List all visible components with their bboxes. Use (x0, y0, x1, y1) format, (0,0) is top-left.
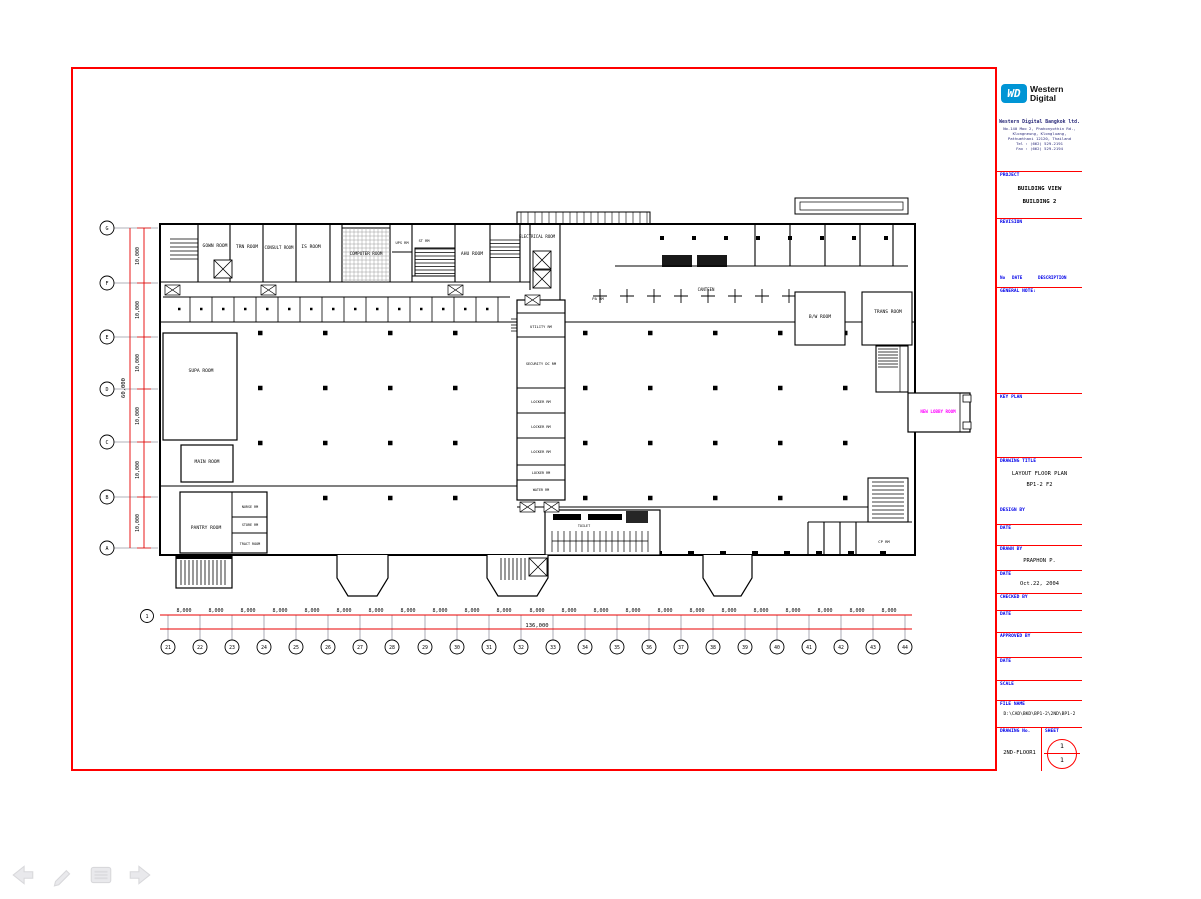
room-labels: GOWN ROOM TRN ROOM CONSULT ROOM IS ROOM … (189, 234, 957, 546)
drawn-by-value: PRAPHON P. (997, 558, 1082, 564)
grid-bubble-label: 33 (550, 645, 556, 651)
dim-label: 10,000 (135, 301, 141, 319)
date-label: DATE (1000, 572, 1011, 577)
forward-arrow-icon[interactable] (127, 862, 153, 888)
dim-label: 8,000 (336, 608, 351, 614)
drawing-no-value: 2ND-FLOOR1 (997, 750, 1042, 756)
project-line1: BUILDING VIEW (997, 186, 1082, 192)
room-label: NURSE RM (242, 505, 258, 509)
date-section-4: DATE (997, 657, 1082, 680)
title-block-logo-section: WD Western Digital Western Digital Bangk… (997, 67, 1082, 171)
dim-label: 8,000 (561, 608, 576, 614)
grid-bubble-label: 42 (838, 645, 844, 651)
sheet-label: SHEET (1045, 729, 1059, 734)
room-label: CONSULT ROOM (265, 245, 294, 250)
grid-bubble-label: C (105, 440, 108, 446)
bottom-dimensions: 1 8,000 8,000 8,000 8,000 8,000 8,000 8,… (141, 608, 913, 644)
design-by-label: DESIGN BY (1000, 508, 1025, 513)
project-label: PROJECT (1000, 173, 1019, 178)
key-plan-section: KEY PLAN (997, 393, 1082, 457)
grid-bubble-label: 35 (614, 645, 620, 651)
file-name-label: FILE NAME (1000, 702, 1025, 707)
scale-label: SCALE (1000, 682, 1014, 687)
pen-tool-icon[interactable] (49, 862, 75, 888)
room-label: CANTEEN (698, 287, 715, 292)
revision-section: REVISION No DATE DESCRIPTION (997, 218, 1082, 287)
date-label: DATE (1000, 659, 1011, 664)
scale-section: SCALE (997, 680, 1082, 700)
grid-bubble-label: 23 (229, 645, 235, 651)
dim-label: 8,000 (400, 608, 415, 614)
left-dimensions: 10,000 10,000 10,000 10,000 10,000 10,00… (100, 221, 158, 555)
canteen-tables (593, 289, 796, 303)
file-name-value: D:\CAD\BKD\BP1-2\2ND\BP1-2 (997, 712, 1082, 717)
dim-label: 8,000 (657, 608, 672, 614)
dim-label: 8,000 (368, 608, 383, 614)
project-line2: BUILDING 2 (997, 199, 1082, 205)
room-label: LOCKER RM (531, 450, 551, 454)
dim-label: 8,000 (529, 608, 544, 614)
grid-bubble-label: 43 (870, 645, 876, 651)
dim-label: 8,000 (689, 608, 704, 614)
elevator-bottom (529, 558, 547, 576)
dim-label: 8,000 (496, 608, 511, 614)
sheet-number-bottom: 1 (1048, 756, 1076, 764)
drawing-title-line2: BP1-2 F2 (997, 482, 1082, 488)
revision-col-desc: DESCRIPTION (1038, 276, 1066, 281)
general-note-section: GENERAL NOTE: (997, 287, 1082, 393)
date-section-1: DATE (997, 524, 1082, 545)
toilet-block (545, 510, 660, 555)
back-arrow-icon[interactable] (10, 862, 36, 888)
checked-by-section: CHECKED BY (997, 593, 1082, 610)
dim-label: 8,000 (304, 608, 319, 614)
dim-label: 10,000 (135, 461, 141, 479)
dim-label: 8,000 (721, 608, 736, 614)
slideshow-controls (10, 862, 153, 888)
approved-by-section: APPROVED BY (997, 632, 1082, 657)
double-door-icon (261, 285, 276, 295)
title-block: WD Western Digital Western Digital Bangk… (995, 67, 1082, 771)
stair-right-upper (876, 346, 908, 392)
room-label: UTILITY RM (530, 325, 552, 329)
grid-bubble-label: 24 (261, 645, 267, 651)
dim-label: 8,000 (464, 608, 479, 614)
company-name: Western Digital Bangkok ltd. (997, 120, 1082, 125)
drawn-by-section: DRAWN BY PRAPHON P. (997, 545, 1082, 570)
grid-bubble-label: 32 (518, 645, 524, 651)
grid-bubble-label: 28 (389, 645, 395, 651)
grid-bubble-label: 27 (357, 645, 363, 651)
date-section-3: DATE (997, 610, 1082, 632)
room-label: ST RM (419, 239, 431, 243)
double-door-icon (525, 295, 540, 305)
approved-by-label: APPROVED BY (1000, 634, 1030, 639)
dim-label: 8,000 (881, 608, 896, 614)
room-label: B/W ROOM (809, 314, 831, 320)
ref-bubble-label: 1 (145, 614, 148, 620)
elevator-top-left (214, 260, 232, 278)
dim-label: 8,000 (208, 608, 223, 614)
drawn-date-value: Oct.22, 2004 (997, 581, 1082, 587)
dim-label: 8,000 (240, 608, 255, 614)
room-label: MAIN ROOM (195, 459, 220, 465)
double-door-icon (544, 502, 559, 512)
room-label: LOCKER RM (531, 425, 551, 429)
dim-label: 10,000 (135, 247, 141, 265)
dim-label: 8,000 (625, 608, 640, 614)
grid-bubble-label: 37 (678, 645, 684, 651)
dim-label: 8,000 (432, 608, 447, 614)
dim-label: 8,000 (817, 608, 832, 614)
room-label: STORE RM (242, 523, 258, 527)
entrance-canopy-3 (703, 555, 752, 596)
room-label: TRANS ROOM (874, 309, 902, 315)
elevator-core-2 (533, 270, 551, 288)
dim-label: 8,000 (785, 608, 800, 614)
grid-bubble-label: 21 (165, 645, 171, 651)
grid-bubble-label: G (105, 226, 108, 232)
grid-bubbles-bottom: 21 22 23 24 25 26 27 28 29 30 31 32 33 3… (161, 640, 912, 654)
grid-bubble-label: 38 (710, 645, 716, 651)
project-section: PROJECT BUILDING VIEW BUILDING 2 (997, 171, 1082, 218)
grid-bubble-label: 30 (454, 645, 460, 651)
dim-label: 8,000 (753, 608, 768, 614)
dim-label: 8,000 (593, 608, 608, 614)
company-address-line: Fax : (662) 529-2194 (997, 146, 1082, 151)
grid-bubble-label: 25 (293, 645, 299, 651)
grid-bubble-label: 36 (646, 645, 652, 651)
revision-col-date: DATE (1012, 276, 1038, 281)
date-section-2: DATE Oct.22, 2004 (997, 570, 1082, 593)
entrance-canopy-1 (337, 555, 388, 596)
room-label: SECURITY DC RM (526, 362, 557, 366)
room-label: CP RM (878, 539, 890, 544)
stair-bottom-left (176, 555, 232, 588)
slide-canvas: GOWN ROOM TRN ROOM CONSULT ROOM IS ROOM … (0, 0, 1201, 899)
general-note-label: GENERAL NOTE: (1000, 289, 1036, 294)
sheet-number-top: 1 (1048, 742, 1076, 750)
room-label: TRN ROOM (236, 244, 258, 250)
key-plan-label: KEY PLAN (1000, 395, 1022, 400)
room-label: IS ROOM (301, 244, 321, 250)
drawn-by-label: DRAWN BY (1000, 547, 1022, 552)
slide-menu-icon[interactable] (88, 862, 114, 888)
room-label: ELECTRICAL ROOM (519, 234, 556, 239)
room-label: WATER RM (533, 488, 549, 492)
drawing-no-label: DRAWING No. (1000, 729, 1030, 734)
canteen-counter (662, 255, 727, 267)
grid-bubble-label: 22 (197, 645, 203, 651)
grid-bubble-label: 34 (582, 645, 588, 651)
sheet-cell: SHEET 1 1 (1041, 728, 1082, 771)
room-label: AHU ROOM (461, 251, 483, 257)
grid-bubble-label: A (105, 546, 108, 552)
room-label: TRACT ROOM (240, 542, 260, 546)
date-label: DATE (1000, 612, 1011, 617)
lobby-label: NEW LOBBY ROOM (920, 409, 956, 414)
room-label: GOWN ROOM (203, 243, 228, 249)
brand-line2: Digital (1030, 94, 1063, 103)
grid-bubble-label: D (105, 387, 108, 393)
checked-by-label: CHECKED BY (1000, 595, 1028, 600)
grid-bubble-label: 39 (742, 645, 748, 651)
grid-bubble-label: 40 (774, 645, 780, 651)
room-label: TOILET (578, 524, 590, 528)
grid-bubble-label: 41 (806, 645, 812, 651)
room-label: PANTRY ROOM (191, 525, 222, 531)
drawing-title-line1: LAYOUT FLOOR PLAN (997, 471, 1082, 477)
dim-label: 8,000 (849, 608, 864, 614)
dim-label: 8,000 (272, 608, 287, 614)
room-label: UPS RM (396, 241, 410, 245)
dim-label: 10,000 (135, 407, 141, 425)
sheet-number-badge: 1 1 (1047, 739, 1077, 769)
file-name-section: FILE NAME D:\CAD\BKD\BP1-2\2ND\BP1-2 (997, 700, 1082, 727)
double-door-icon (448, 285, 463, 295)
room-label: LOCKER RM (531, 400, 551, 404)
drawing-number-section: DRAWING No. 2ND-FLOOR1 SHEET 1 1 (997, 727, 1082, 771)
double-door-icon (165, 285, 180, 295)
elevator-core-1 (533, 251, 551, 269)
room-label: COMPUTER ROOM (350, 251, 383, 256)
top-duct-strip (517, 212, 650, 224)
room-label: PA RM (592, 296, 604, 301)
top-right-canopy (795, 198, 908, 214)
grid-bubble-label: 29 (422, 645, 428, 651)
drawing-title-section: DRAWING TITLE LAYOUT FLOOR PLAN BP1-2 F2… (997, 457, 1082, 524)
date-label: DATE (1000, 526, 1011, 531)
revision-col-no: No (1000, 276, 1012, 281)
dim-label: 10,000 (135, 354, 141, 372)
revision-label: REVISION (1000, 220, 1022, 225)
room-label: LOCKER RM (532, 471, 550, 475)
trans-room (862, 292, 912, 345)
supa-room (163, 333, 237, 440)
stair-top-left (170, 239, 198, 259)
dim-total-label: 136,000 (525, 623, 548, 629)
company-address: Western Digital Bangkok ltd. No.140 Moo … (997, 120, 1082, 151)
dim-label: 10,000 (135, 514, 141, 532)
grid-bubble-label: B (105, 495, 108, 501)
wd-logo-icon: WD (1001, 84, 1027, 103)
dim-total-label: 60,000 (121, 378, 127, 398)
grid-bubble-label: 26 (325, 645, 331, 651)
grid-bubble-label: 44 (902, 645, 908, 651)
stair-top-center (490, 240, 520, 258)
double-door-icon (520, 502, 535, 512)
grid-bubble-label: E (105, 335, 108, 341)
stair-right-lower (868, 478, 908, 522)
room-label: SUPA ROOM (189, 368, 214, 374)
dim-label: 8,000 (176, 608, 191, 614)
drawing-title-label: DRAWING TITLE (1000, 459, 1036, 464)
equipment-racks (415, 248, 455, 276)
grid-bubble-label: 31 (486, 645, 492, 651)
grid-bubble-label: F (105, 281, 108, 287)
sheet-divider (1044, 753, 1080, 754)
